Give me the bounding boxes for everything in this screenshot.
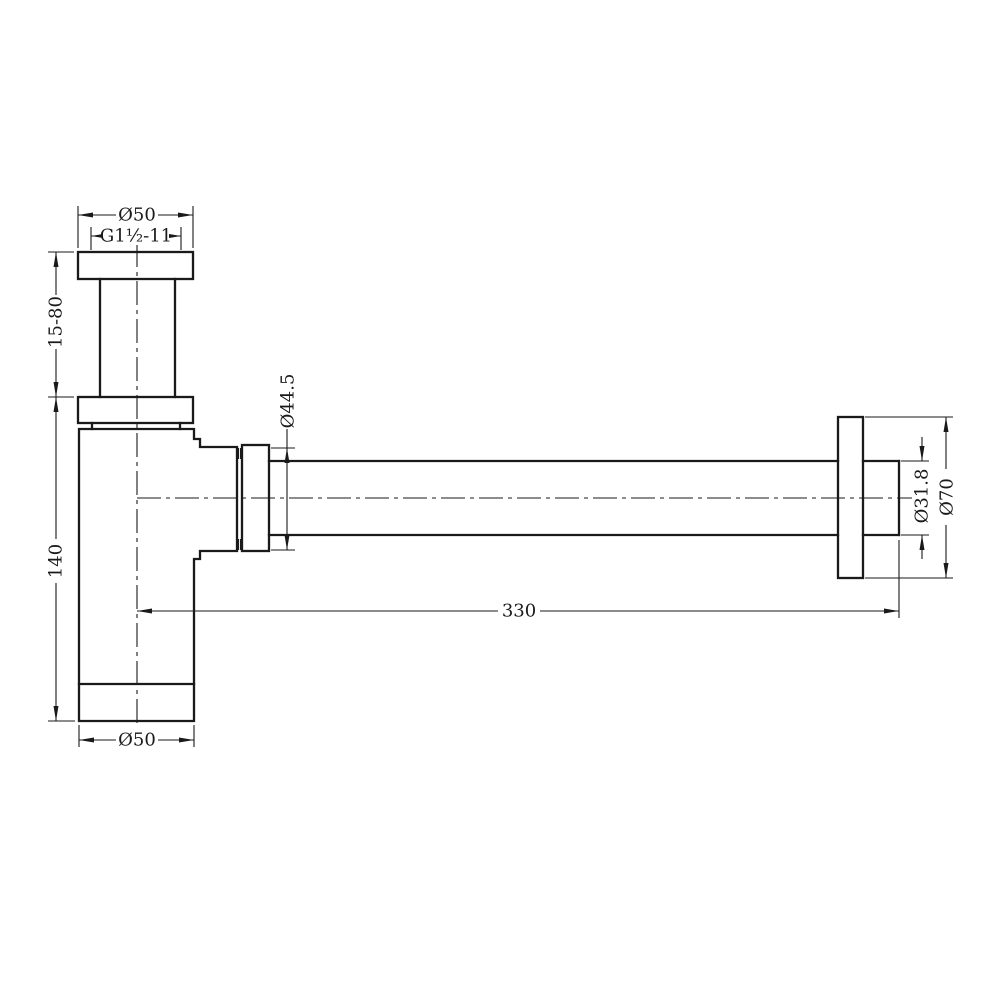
arrow-right [884,609,899,614]
arrow-down [944,563,949,578]
dim-label-body-height: 140 [46,544,67,578]
drawing-canvas: Ø50 G1½-11 15-80 [0,0,1000,1000]
arrow-right [178,213,193,218]
dim-label-nut-diameter: Ø44.5 [278,374,299,429]
dim-label-wall-flange-diameter: Ø70 [937,478,958,516]
arrow-up [944,417,949,432]
dim-label-inlet-height-range: 15-80 [46,296,67,348]
dim-label-overall-length: 330 [502,601,536,622]
trap-body [79,429,237,721]
dim-label-outlet-pipe-diameter: Ø31.8 [912,469,933,524]
inlet-flange [78,252,193,279]
arrow-left [78,213,93,218]
arrow-up [54,252,59,267]
dim-overall-length: 330 [137,540,899,622]
arrow-left [137,609,152,614]
arrow-down [54,706,59,721]
arrow-right [179,738,194,743]
dim-bottom-diameter: Ø50 [79,725,194,751]
dim-thread-spec: G1½-11 [91,226,181,251]
arrow-up [54,397,59,412]
dim-body-height: 140 [46,397,76,721]
dim-label-top-diameter: Ø50 [118,205,156,226]
arrow-left [79,738,94,743]
arrow-down [920,446,925,461]
arrow-up [285,448,290,463]
arrow-down [285,535,290,550]
arrow-up [920,535,925,550]
part-outline [78,252,899,721]
bottle-trap-drawing: Ø50 G1½-11 15-80 [0,0,1000,1000]
centerlines [137,243,912,727]
dim-label-thread-spec: G1½-11 [100,226,172,247]
dim-inlet-height-range: 15-80 [46,252,75,397]
body-top-flange [78,397,193,423]
arrow-down [54,382,59,397]
dim-label-bottom-diameter: Ø50 [118,730,156,751]
